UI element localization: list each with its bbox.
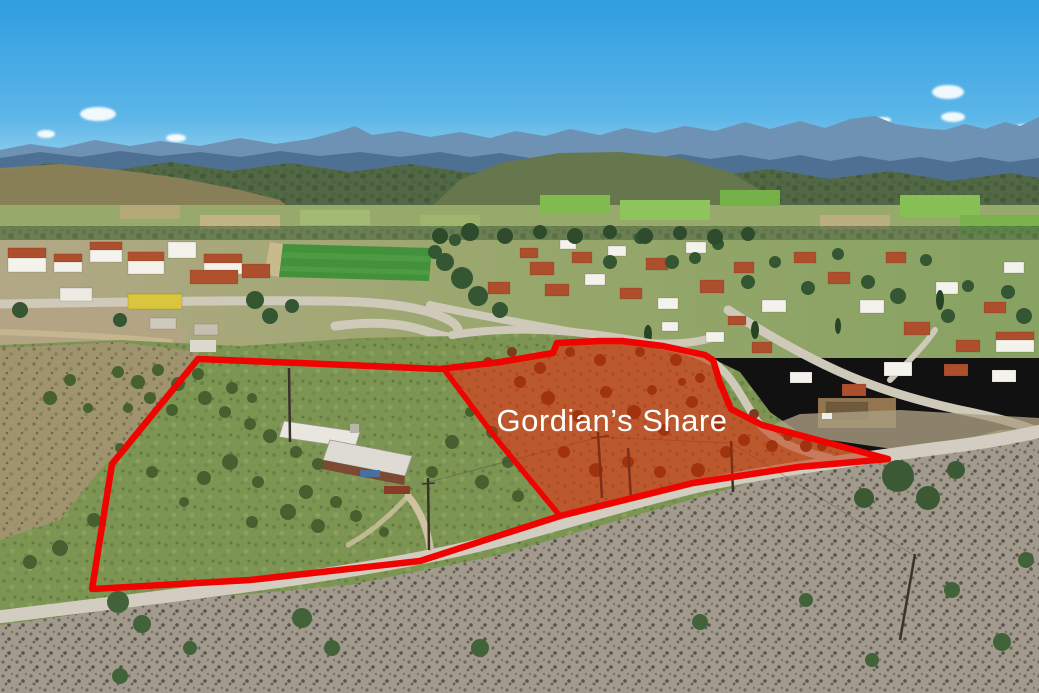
aerial-photo-stage: Gordian’s Share — [0, 0, 1039, 693]
football-pitch — [264, 242, 432, 281]
small-shed — [190, 340, 216, 352]
parked-car — [822, 413, 832, 419]
aerial-photo: Gordian’s Share — [0, 0, 1039, 693]
parcel-label: Gordian’s Share — [497, 403, 728, 438]
